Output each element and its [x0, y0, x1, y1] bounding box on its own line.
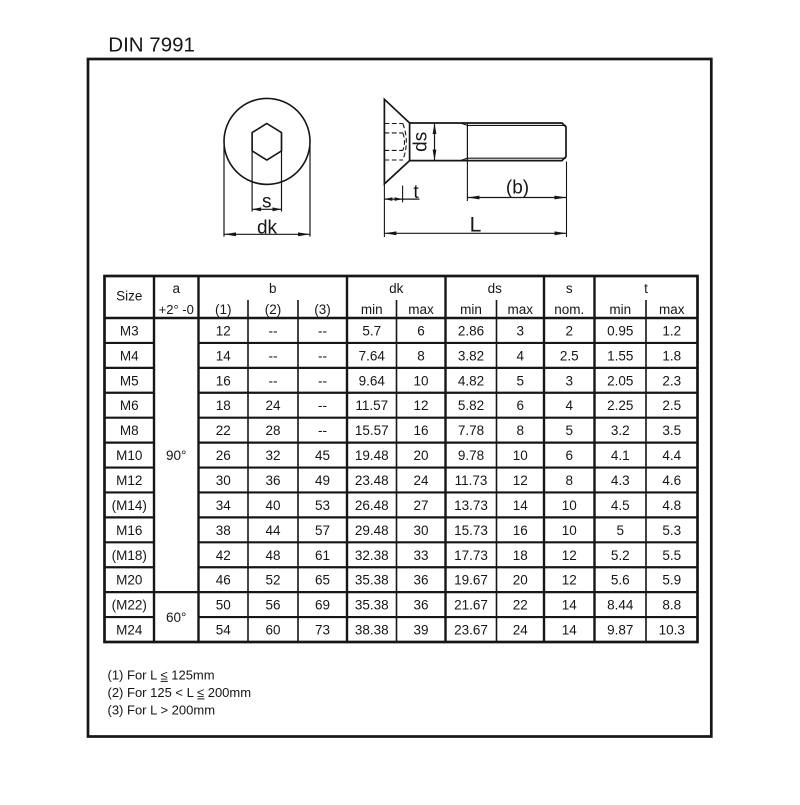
svg-text:16: 16: [216, 373, 231, 388]
svg-text:9.64: 9.64: [359, 373, 386, 388]
svg-text:M8: M8: [120, 423, 139, 438]
svg-text:12: 12: [562, 548, 577, 563]
svg-text:M16: M16: [116, 523, 142, 538]
svg-text:3: 3: [565, 373, 573, 388]
svg-text:6: 6: [516, 398, 524, 413]
svg-text:--: --: [318, 348, 327, 363]
svg-text:3.5: 3.5: [662, 423, 681, 438]
svg-text:s: s: [262, 192, 272, 213]
svg-text:57: 57: [315, 523, 330, 538]
svg-text:8.8: 8.8: [662, 598, 681, 613]
svg-text:ds: ds: [488, 281, 503, 296]
svg-text:Size: Size: [116, 288, 142, 303]
svg-text:7.64: 7.64: [359, 348, 386, 363]
svg-text:(3): (3): [314, 302, 331, 317]
svg-text:DIN 7991: DIN 7991: [108, 34, 195, 57]
svg-text:--: --: [318, 323, 327, 338]
svg-text:49: 49: [315, 473, 330, 488]
svg-text:4: 4: [565, 398, 573, 413]
svg-text:a: a: [172, 281, 180, 296]
svg-text:20: 20: [513, 573, 528, 588]
svg-text:7.78: 7.78: [458, 423, 484, 438]
svg-text:M10: M10: [116, 448, 142, 463]
svg-text:8: 8: [565, 473, 573, 488]
svg-text:--: --: [318, 373, 327, 388]
svg-text:min: min: [460, 302, 482, 317]
svg-text:2.5: 2.5: [662, 398, 681, 413]
svg-text:34: 34: [216, 498, 232, 513]
svg-text:45: 45: [315, 448, 330, 463]
svg-text:46: 46: [216, 573, 231, 588]
svg-text:26.48: 26.48: [355, 498, 389, 513]
svg-text:2: 2: [565, 323, 573, 338]
svg-text:9.78: 9.78: [458, 448, 484, 463]
svg-text:90°: 90°: [166, 448, 186, 463]
svg-text:3: 3: [516, 323, 524, 338]
svg-text:t: t: [644, 281, 648, 296]
svg-text:32: 32: [265, 448, 280, 463]
svg-text:5.7: 5.7: [362, 323, 381, 338]
svg-text:52: 52: [265, 573, 280, 588]
svg-text:M4: M4: [120, 348, 139, 363]
svg-text:14: 14: [513, 498, 529, 513]
svg-text:max: max: [408, 302, 434, 317]
svg-text:35.38: 35.38: [355, 573, 389, 588]
svg-text:(M22): (M22): [112, 598, 147, 613]
svg-text:M5: M5: [120, 373, 139, 388]
svg-text:12: 12: [216, 323, 231, 338]
svg-text:42: 42: [216, 548, 231, 563]
svg-text:(M18): (M18): [112, 548, 147, 563]
svg-text:17.73: 17.73: [454, 548, 488, 563]
svg-text:L: L: [470, 214, 482, 237]
svg-text:max: max: [659, 302, 685, 317]
svg-text:4.3: 4.3: [611, 473, 630, 488]
svg-text:8: 8: [417, 348, 425, 363]
svg-text:10: 10: [413, 373, 428, 388]
svg-text:(1): (1): [215, 302, 232, 317]
svg-text:60: 60: [265, 623, 280, 638]
svg-text:28: 28: [265, 423, 280, 438]
svg-text:3.82: 3.82: [458, 348, 484, 363]
svg-text:22: 22: [513, 598, 528, 613]
svg-text:10.3: 10.3: [659, 623, 685, 638]
svg-text:36: 36: [265, 473, 280, 488]
svg-text:24: 24: [413, 473, 429, 488]
svg-text:50: 50: [216, 598, 231, 613]
svg-text:26: 26: [216, 448, 231, 463]
svg-text:2.25: 2.25: [607, 398, 633, 413]
svg-text:24: 24: [513, 623, 529, 638]
svg-text:M12: M12: [116, 473, 142, 488]
svg-text:16: 16: [513, 523, 528, 538]
svg-text:16: 16: [413, 423, 428, 438]
svg-text:29.48: 29.48: [355, 523, 389, 538]
svg-text:dk: dk: [257, 217, 278, 238]
svg-text:40: 40: [265, 498, 280, 513]
svg-text:33: 33: [413, 548, 428, 563]
svg-text:5: 5: [616, 523, 624, 538]
svg-text:(b): (b): [506, 177, 529, 198]
svg-text:(3) For L > 200mm: (3) For L > 200mm: [108, 702, 216, 717]
svg-text:4.8: 4.8: [662, 498, 681, 513]
svg-text:5: 5: [516, 373, 524, 388]
svg-text:min: min: [361, 302, 383, 317]
svg-text:6: 6: [565, 448, 573, 463]
svg-text:18: 18: [216, 398, 231, 413]
svg-text:M6: M6: [120, 398, 139, 413]
svg-text:5.82: 5.82: [458, 398, 484, 413]
svg-text:53: 53: [315, 498, 330, 513]
svg-text:4.6: 4.6: [662, 473, 681, 488]
svg-text:--: --: [269, 373, 278, 388]
svg-text:(2) For 125 < L ≤ 200mm: (2) For 125 < L ≤ 200mm: [108, 685, 252, 700]
svg-text:13.73: 13.73: [454, 498, 488, 513]
svg-text:44: 44: [265, 523, 281, 538]
svg-text:69: 69: [315, 598, 330, 613]
svg-text:0.95: 0.95: [607, 323, 633, 338]
svg-text:65: 65: [315, 573, 330, 588]
svg-text:56: 56: [265, 598, 280, 613]
svg-text:9.87: 9.87: [607, 623, 633, 638]
svg-text:+2° -0: +2° -0: [159, 302, 194, 317]
svg-text:2.5: 2.5: [560, 348, 579, 363]
svg-text:18: 18: [513, 548, 528, 563]
svg-text:10: 10: [562, 498, 577, 513]
svg-text:4.4: 4.4: [662, 448, 681, 463]
svg-text:60°: 60°: [166, 610, 186, 625]
svg-text:b: b: [269, 281, 277, 296]
svg-text:23.48: 23.48: [355, 473, 389, 488]
svg-text:11.73: 11.73: [455, 473, 488, 488]
svg-text:(M14): (M14): [112, 498, 147, 513]
svg-text:10: 10: [562, 523, 577, 538]
svg-text:2.86: 2.86: [458, 323, 484, 338]
svg-text:--: --: [318, 423, 327, 438]
svg-text:36: 36: [413, 598, 428, 613]
svg-text:dk: dk: [389, 281, 404, 296]
svg-text:54: 54: [216, 623, 232, 638]
svg-text:6: 6: [417, 323, 425, 338]
svg-text:5.9: 5.9: [662, 573, 681, 588]
svg-text:s: s: [566, 281, 573, 296]
svg-text:1.2: 1.2: [662, 323, 681, 338]
svg-text:19.67: 19.67: [454, 573, 488, 588]
svg-text:12: 12: [513, 473, 528, 488]
svg-text:--: --: [269, 348, 278, 363]
svg-text:36: 36: [413, 573, 428, 588]
svg-text:ds: ds: [410, 132, 431, 152]
svg-text:1.55: 1.55: [607, 348, 633, 363]
svg-text:73: 73: [315, 623, 330, 638]
svg-text:39: 39: [413, 623, 428, 638]
svg-text:14: 14: [562, 623, 578, 638]
svg-text:20: 20: [413, 448, 428, 463]
svg-text:M24: M24: [116, 623, 143, 638]
svg-text:5.3: 5.3: [662, 523, 681, 538]
svg-text:24: 24: [265, 398, 281, 413]
svg-text:t: t: [413, 182, 419, 203]
svg-text:5.5: 5.5: [662, 548, 681, 563]
svg-text:10: 10: [513, 448, 528, 463]
svg-text:4.1: 4.1: [611, 448, 630, 463]
svg-text:23.67: 23.67: [454, 623, 488, 638]
svg-text:4: 4: [516, 348, 524, 363]
svg-text:--: --: [318, 398, 327, 413]
svg-text:min: min: [609, 302, 631, 317]
svg-text:11.57: 11.57: [355, 398, 388, 413]
svg-text:2.05: 2.05: [607, 373, 633, 388]
svg-text:32.38: 32.38: [355, 548, 389, 563]
svg-text:nom.: nom.: [554, 302, 584, 317]
svg-text:22: 22: [216, 423, 231, 438]
svg-text:M3: M3: [120, 323, 139, 338]
svg-text:5.6: 5.6: [611, 573, 630, 588]
svg-text:30: 30: [413, 523, 428, 538]
svg-text:5.2: 5.2: [611, 548, 630, 563]
svg-text:1.8: 1.8: [662, 348, 681, 363]
svg-text:15.73: 15.73: [454, 523, 488, 538]
svg-text:4.82: 4.82: [458, 373, 484, 388]
svg-text:38: 38: [216, 523, 231, 538]
svg-text:12: 12: [562, 573, 577, 588]
svg-text:2.3: 2.3: [662, 373, 681, 388]
svg-text:35.38: 35.38: [355, 598, 389, 613]
svg-text:5: 5: [565, 423, 573, 438]
svg-text:(2): (2): [265, 302, 282, 317]
svg-text:19.48: 19.48: [355, 448, 389, 463]
svg-text:4.5: 4.5: [611, 498, 630, 513]
svg-text:14: 14: [216, 348, 232, 363]
svg-text:3.2: 3.2: [611, 423, 630, 438]
svg-text:12: 12: [413, 398, 428, 413]
svg-text:M20: M20: [116, 573, 142, 588]
svg-text:14: 14: [562, 598, 578, 613]
svg-text:(1) For L ≤ 125mm: (1) For L ≤ 125mm: [108, 667, 215, 682]
svg-text:30: 30: [216, 473, 231, 488]
svg-text:48: 48: [265, 548, 280, 563]
svg-text:38.38: 38.38: [355, 623, 389, 638]
svg-text:27: 27: [413, 498, 428, 513]
svg-text:15.57: 15.57: [355, 423, 389, 438]
svg-text:max: max: [507, 302, 533, 317]
svg-text:--: --: [269, 323, 278, 338]
svg-text:61: 61: [315, 548, 330, 563]
svg-text:21.67: 21.67: [454, 598, 488, 613]
svg-text:8: 8: [516, 423, 524, 438]
svg-text:8.44: 8.44: [607, 598, 634, 613]
